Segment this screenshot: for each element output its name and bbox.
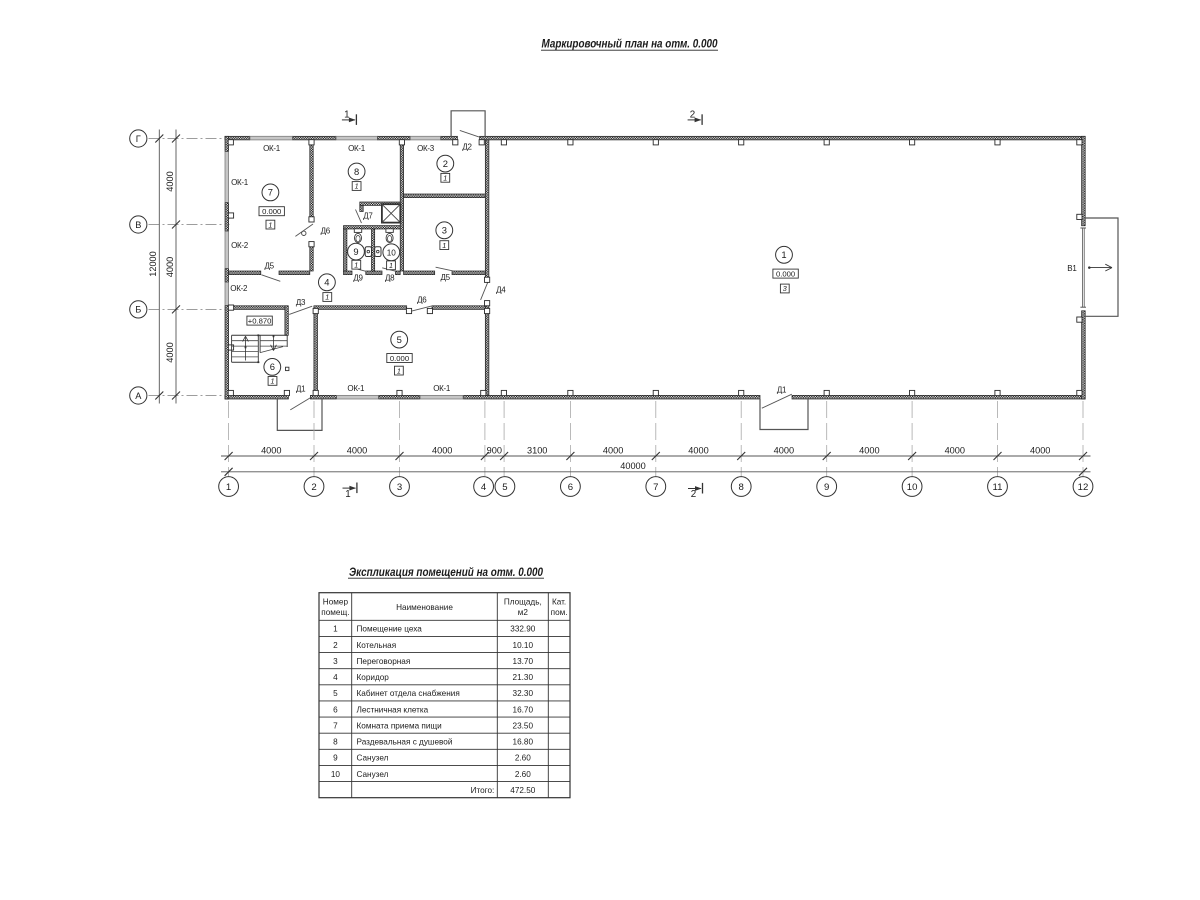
svg-text:32.30: 32.30 (513, 689, 534, 698)
svg-text:16.70: 16.70 (513, 705, 534, 714)
svg-text:Помещение цеха: Помещение цеха (357, 625, 423, 634)
svg-text:Котельная: Котельная (357, 641, 397, 650)
svg-text:1: 1 (442, 241, 446, 250)
svg-text:4000: 4000 (165, 171, 175, 191)
svg-text:11: 11 (993, 482, 1003, 493)
svg-text:0.000: 0.000 (776, 269, 795, 278)
svg-text:ОК-1: ОК-1 (433, 384, 451, 393)
svg-text:4000: 4000 (859, 445, 879, 455)
svg-text:1: 1 (355, 182, 359, 191)
svg-text:10.10: 10.10 (513, 641, 534, 650)
svg-text:Переговорная: Переговорная (357, 657, 411, 666)
svg-text:Д3: Д3 (296, 298, 306, 307)
svg-text:помещ.: помещ. (321, 608, 349, 617)
svg-text:9: 9 (824, 482, 829, 493)
svg-text:0.000: 0.000 (390, 354, 409, 363)
svg-text:900: 900 (487, 445, 502, 455)
svg-text:1: 1 (271, 377, 275, 386)
svg-text:6: 6 (333, 705, 338, 714)
svg-text:ОК-3: ОК-3 (417, 144, 435, 153)
svg-text:Санузел: Санузел (357, 770, 389, 779)
svg-text:м2: м2 (518, 608, 529, 617)
svg-text:4000: 4000 (1030, 445, 1050, 455)
svg-text:Комната приема пищи: Комната приема пищи (357, 722, 442, 731)
svg-text:Площадь,: Площадь, (504, 597, 542, 606)
svg-text:4000: 4000 (347, 445, 367, 455)
svg-text:332.90: 332.90 (510, 625, 535, 634)
svg-text:5: 5 (502, 482, 507, 493)
svg-text:Раздевальная с душевой: Раздевальная с душевой (357, 738, 453, 747)
svg-text:472.50: 472.50 (510, 786, 535, 795)
svg-text:1: 1 (226, 482, 231, 493)
svg-text:4: 4 (481, 482, 487, 493)
svg-text:12: 12 (1078, 482, 1089, 493)
svg-text:4: 4 (333, 673, 338, 682)
svg-text:+0.870: +0.870 (248, 316, 272, 325)
svg-text:9: 9 (353, 246, 358, 257)
svg-text:4: 4 (324, 277, 329, 288)
svg-text:5: 5 (397, 334, 402, 345)
svg-text:1: 1 (268, 220, 272, 229)
svg-text:10: 10 (907, 482, 918, 493)
svg-text:Номер: Номер (323, 597, 349, 606)
svg-text:6: 6 (270, 361, 275, 372)
svg-text:10: 10 (331, 770, 341, 779)
svg-text:ОК-1: ОК-1 (347, 384, 365, 393)
svg-text:16.80: 16.80 (513, 738, 534, 747)
svg-text:Д9: Д9 (353, 273, 363, 282)
svg-text:4000: 4000 (603, 445, 623, 455)
svg-text:1: 1 (443, 174, 447, 183)
svg-text:5: 5 (333, 689, 338, 698)
svg-text:Маркировочный план на отм. 0.0: Маркировочный план на отм. 0.000 (542, 37, 718, 51)
svg-text:8: 8 (333, 738, 338, 747)
svg-text:23.50: 23.50 (513, 722, 534, 731)
svg-text:Б: Б (135, 305, 141, 315)
svg-text:2.60: 2.60 (515, 770, 531, 779)
svg-text:ОК-2: ОК-2 (230, 284, 248, 293)
svg-text:4000: 4000 (261, 445, 281, 455)
svg-text:Экспликация помещений на отм.: Экспликация помещений на отм. 0.000 (349, 565, 543, 579)
svg-text:Лестничная клетка: Лестничная клетка (357, 705, 429, 714)
svg-text:1: 1 (333, 625, 338, 634)
svg-text:А: А (135, 391, 142, 401)
svg-text:Д1: Д1 (296, 385, 306, 394)
svg-text:3: 3 (442, 225, 447, 236)
svg-text:Д6: Д6 (321, 227, 331, 236)
svg-text:1: 1 (397, 366, 401, 375)
svg-text:2: 2 (311, 482, 316, 493)
svg-text:8: 8 (354, 166, 359, 177)
svg-text:ОК-2: ОК-2 (231, 241, 249, 250)
svg-text:10: 10 (387, 249, 397, 258)
svg-text:Кабинет отдела снабжения: Кабинет отдела снабжения (357, 689, 460, 698)
svg-text:Г: Г (136, 134, 141, 144)
svg-text:1: 1 (345, 489, 350, 500)
svg-text:1: 1 (781, 249, 786, 260)
svg-text:1: 1 (325, 293, 329, 302)
svg-text:ОК-1: ОК-1 (348, 144, 366, 153)
svg-text:0.000: 0.000 (262, 207, 281, 216)
svg-text:ОК-1: ОК-1 (263, 144, 281, 153)
svg-text:2: 2 (443, 158, 448, 169)
svg-text:Наименование: Наименование (396, 603, 453, 612)
svg-text:12000: 12000 (148, 251, 158, 277)
svg-text:Д7: Д7 (363, 211, 373, 220)
svg-text:13.70: 13.70 (513, 657, 534, 666)
svg-text:3: 3 (333, 657, 338, 666)
svg-text:1: 1 (344, 110, 349, 121)
svg-text:Коридор: Коридор (357, 673, 390, 682)
svg-text:21.30: 21.30 (513, 673, 534, 682)
svg-text:4000: 4000 (165, 257, 175, 277)
svg-text:9: 9 (333, 754, 338, 763)
svg-text:Санузел: Санузел (357, 754, 389, 763)
svg-text:1: 1 (354, 260, 358, 269)
svg-text:2: 2 (333, 641, 338, 650)
svg-text:Д5: Д5 (265, 262, 275, 271)
svg-text:4000: 4000 (945, 445, 965, 455)
svg-text:2: 2 (690, 110, 695, 121)
svg-text:2: 2 (691, 489, 696, 500)
svg-text:Д8: Д8 (385, 273, 395, 282)
svg-text:Д1: Д1 (777, 385, 787, 394)
svg-text:7: 7 (333, 722, 338, 731)
svg-text:В1: В1 (1067, 264, 1077, 273)
svg-text:4000: 4000 (774, 445, 794, 455)
svg-text:40000: 40000 (620, 461, 646, 471)
svg-text:3100: 3100 (527, 445, 547, 455)
svg-text:4000: 4000 (688, 445, 708, 455)
svg-text:Д2: Д2 (462, 142, 472, 151)
svg-text:В: В (135, 220, 141, 230)
svg-text:7: 7 (268, 187, 273, 198)
svg-text:4000: 4000 (165, 342, 175, 362)
svg-text:Д4: Д4 (496, 285, 506, 294)
svg-text:6: 6 (568, 482, 573, 493)
svg-text:3: 3 (783, 284, 787, 293)
svg-text:Д6: Д6 (417, 295, 427, 304)
svg-text:4000: 4000 (432, 445, 452, 455)
svg-text:7: 7 (653, 482, 658, 493)
svg-text:ОК-1: ОК-1 (231, 178, 249, 187)
svg-text:1: 1 (389, 261, 393, 270)
svg-text:2.60: 2.60 (515, 754, 531, 763)
svg-text:Д5: Д5 (441, 273, 451, 282)
svg-text:3: 3 (397, 482, 402, 493)
svg-text:Кат.: Кат. (552, 597, 566, 606)
svg-text:8: 8 (739, 482, 744, 493)
svg-text:пом.: пом. (551, 608, 568, 617)
svg-text:Итого:: Итого: (471, 786, 495, 795)
